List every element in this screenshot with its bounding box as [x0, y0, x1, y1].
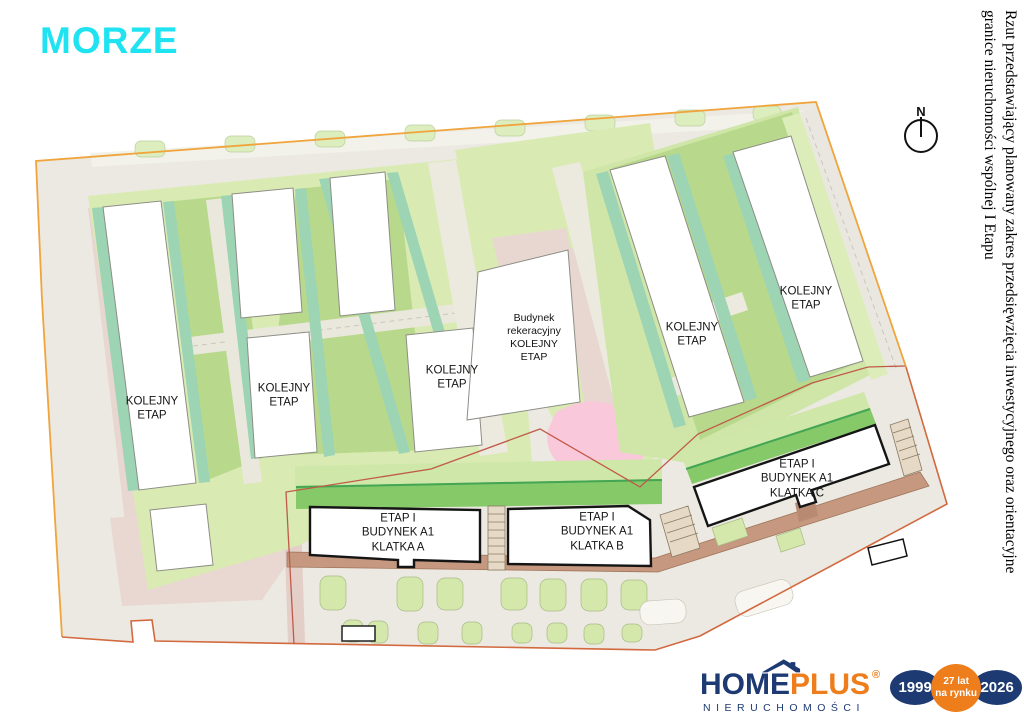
building-label-rekreacyjny: Budynek rekeracyjny KOLEJNY ETAP	[507, 312, 561, 365]
logo-subtitle: NIERUCHOMOŚCI	[700, 702, 880, 714]
registered-mark: ®	[872, 669, 880, 681]
building-kolejny-3-upper	[330, 172, 395, 316]
logo-wordmark: HOMEPLUS® NIERUCHOMOŚCI	[700, 661, 880, 714]
building-label-kolejny-etap-5: KOLEJNY ETAP	[780, 285, 832, 314]
logo-text-plus: PLUS	[790, 668, 870, 701]
building-label-kolejny-etap-1: KOLEJNY ETAP	[126, 395, 178, 424]
page: KOLEJNY ETAP KOLEJNY ETAP KOLEJNY ETAP B…	[0, 0, 1024, 715]
north-compass: N	[903, 104, 939, 153]
building-label-kolejny-etap-2: KOLEJNY ETAP	[258, 382, 310, 411]
building-kolejny-2-upper	[232, 188, 302, 318]
homeplus-logo: HOMEPLUS® NIERUCHOMOŚCI 1999 27 lat na r…	[700, 661, 1022, 714]
building-label-kolejny-etap-3: KOLEJNY ETAP	[426, 364, 478, 393]
compass-circle-icon	[904, 119, 938, 153]
building-label-klatka-c: ETAP I BUDYNEK A1 KLATKA C	[761, 457, 833, 500]
building-label-klatka-a: ETAP I BUDYNEK A1 KLATKA A	[362, 511, 434, 554]
building-label-klatka-b: ETAP I BUDYNEK A1 KLATKA B	[561, 510, 633, 553]
roof-icon	[760, 658, 802, 673]
anniversary-badges: 1999 27 lat na rynku 2026	[890, 664, 1022, 712]
compass-needle-icon	[920, 117, 922, 137]
logo-main: HOMEPLUS®	[700, 661, 880, 700]
badge-27-lat: 27 lat na rynku	[931, 664, 981, 712]
building-small-west	[150, 504, 213, 571]
plan-caption: Rzut przedstawiający planowany zakres pr…	[978, 10, 1020, 710]
development-name: MORZE	[40, 20, 179, 62]
building-label-kolejny-etap-4: KOLEJNY ETAP	[666, 321, 718, 350]
